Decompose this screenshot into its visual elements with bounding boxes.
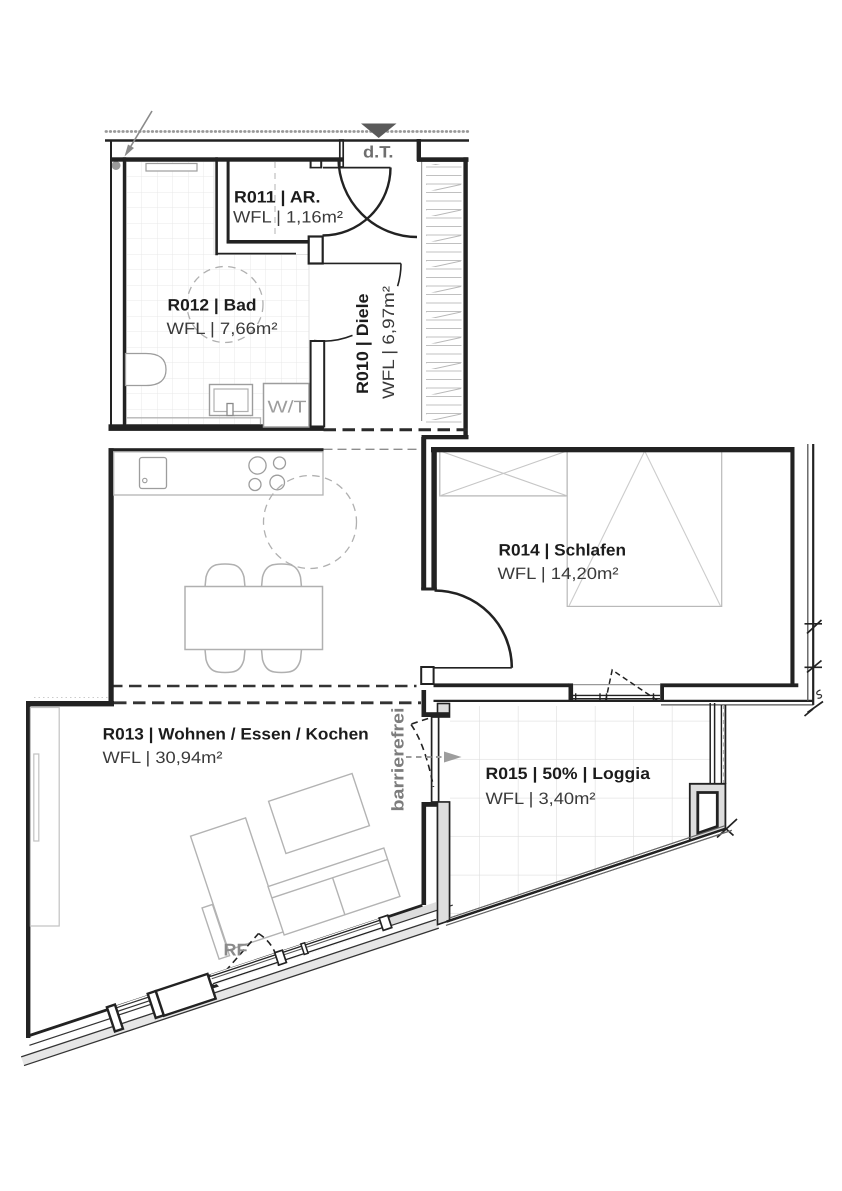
svg-text:barrierefrei: barrierefrei xyxy=(389,708,408,812)
svg-text:R014 | Schlafen: R014 | Schlafen xyxy=(499,542,627,560)
svg-text:R015 | 50% | Loggia: R015 | 50% | Loggia xyxy=(486,765,651,783)
svg-text:W/T: W/T xyxy=(268,398,307,417)
svg-text:R013 | Wohnen / Essen / Kochen: R013 | Wohnen / Essen / Kochen xyxy=(103,726,369,744)
svg-text:WFL | 1,16m²: WFL | 1,16m² xyxy=(233,209,344,227)
svg-text:WFL | 30,94m²: WFL | 30,94m² xyxy=(103,749,224,767)
svg-text:d.T.: d.T. xyxy=(363,144,394,162)
svg-text:RF: RF xyxy=(224,941,248,960)
svg-text:R010 | Diele: R010 | Diele xyxy=(354,294,372,395)
svg-text:R012 | Bad: R012 | Bad xyxy=(168,297,257,315)
svg-text:WFL | 7,66m²: WFL | 7,66m² xyxy=(167,320,279,338)
svg-text:WFL | 6,97m²: WFL | 6,97m² xyxy=(380,285,398,399)
svg-text:R011 | AR.: R011 | AR. xyxy=(234,189,321,207)
svg-text:WFL | 3,40m²: WFL | 3,40m² xyxy=(486,790,597,808)
svg-text:WFL | 14,20m²: WFL | 14,20m² xyxy=(498,565,620,583)
